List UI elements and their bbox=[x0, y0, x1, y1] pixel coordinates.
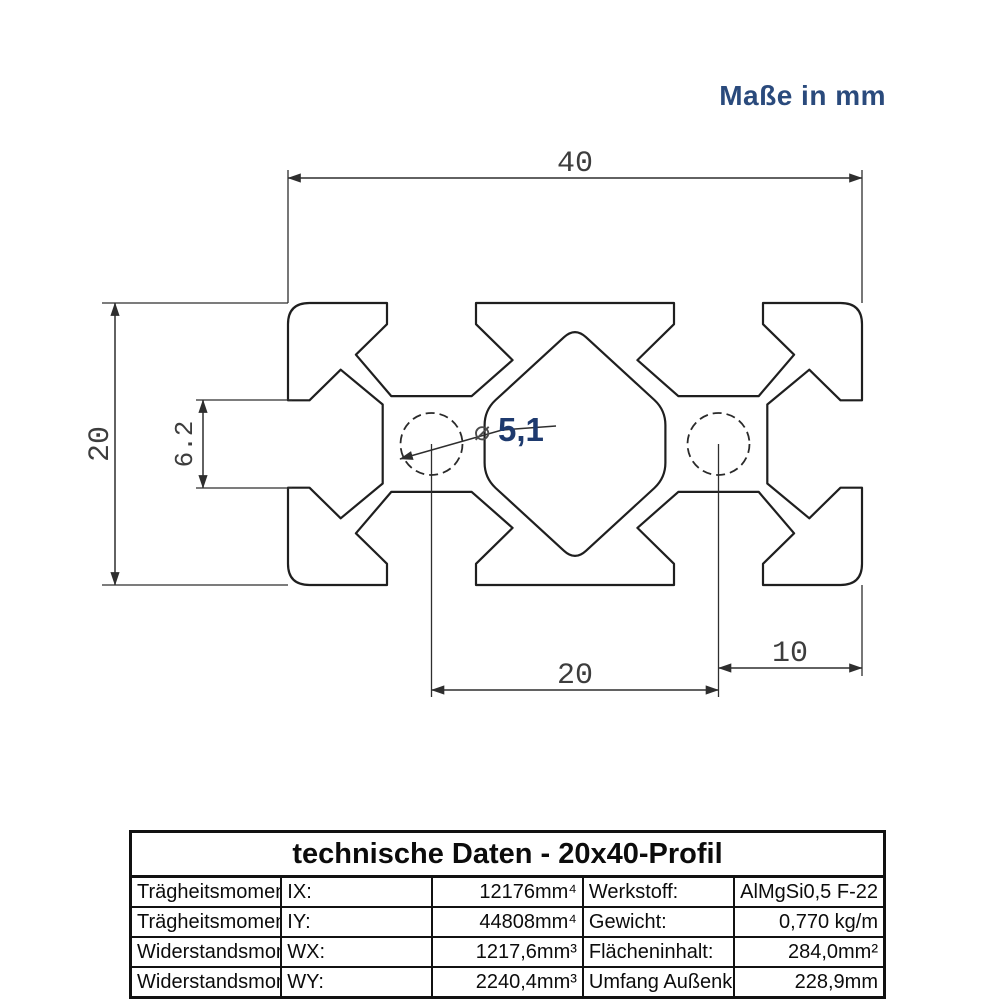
value-cell: 0,770 kg/m bbox=[734, 907, 885, 937]
dimension-10-spacing-label: 10 bbox=[772, 637, 808, 671]
value-cell: 2240,4mm³ bbox=[432, 967, 583, 998]
value-cell: 1217,6mm³ bbox=[432, 937, 583, 967]
units-note: Maße in mm bbox=[716, 80, 886, 112]
value-cell: 228,9mm bbox=[734, 967, 885, 998]
value-cell: 284,0mm² bbox=[734, 937, 885, 967]
profile-outline bbox=[288, 303, 862, 585]
symbol-cell: WY: bbox=[281, 967, 432, 998]
table-row: Widerstandsmoment WY: 2240,4mm³ Umfang A… bbox=[131, 967, 885, 998]
profile-technical-drawing: 40 20 6.2 ⌀ 5,1 20 10 bbox=[70, 140, 900, 720]
hole-diameter-label: 5,1 bbox=[498, 411, 544, 448]
page: Maße in mm bbox=[0, 0, 1000, 1000]
property-cell: Flächeninhalt: bbox=[583, 937, 734, 967]
dimension-20-height-label: 20 bbox=[84, 426, 118, 462]
property-cell: Werkstoff: bbox=[583, 877, 734, 908]
dimension-20-spacing-label: 20 bbox=[557, 659, 593, 693]
value-cell: 44808mm⁴ bbox=[432, 907, 583, 937]
tech-data-table: technische Daten - 20x40-Profil Trägheit… bbox=[129, 830, 886, 999]
symbol-cell: WX: bbox=[281, 937, 432, 967]
value-cell: 12176mm⁴ bbox=[432, 877, 583, 908]
property-cell: Trägheitsmoment bbox=[131, 907, 282, 937]
table-row: Trägheitsmoment IY: 44808mm⁴ Gewicht: 0,… bbox=[131, 907, 885, 937]
property-cell: Widerstandsmoment bbox=[131, 967, 282, 998]
property-cell: Trägheitsmoment bbox=[131, 877, 282, 908]
property-cell: Umfang Außenkontur: bbox=[583, 967, 734, 998]
property-cell: Gewicht: bbox=[583, 907, 734, 937]
table-title: technische Daten - 20x40-Profil bbox=[131, 832, 885, 877]
dimension-6-2-label: 6.2 bbox=[170, 421, 200, 468]
value-cell: AlMgSi0,5 F-22 bbox=[734, 877, 885, 908]
table-row: Trägheitsmoment IX: 12176mm⁴ Werkstoff: … bbox=[131, 877, 885, 908]
dimension-40-label: 40 bbox=[557, 147, 593, 181]
diameter-symbol: ⌀ bbox=[474, 416, 490, 447]
symbol-cell: IY: bbox=[281, 907, 432, 937]
symbol-cell: IX: bbox=[281, 877, 432, 908]
property-cell: Widerstandsmoment bbox=[131, 937, 282, 967]
table-row: Widerstandsmoment WX: 1217,6mm³ Flächeni… bbox=[131, 937, 885, 967]
table-title-row: technische Daten - 20x40-Profil bbox=[131, 832, 885, 877]
